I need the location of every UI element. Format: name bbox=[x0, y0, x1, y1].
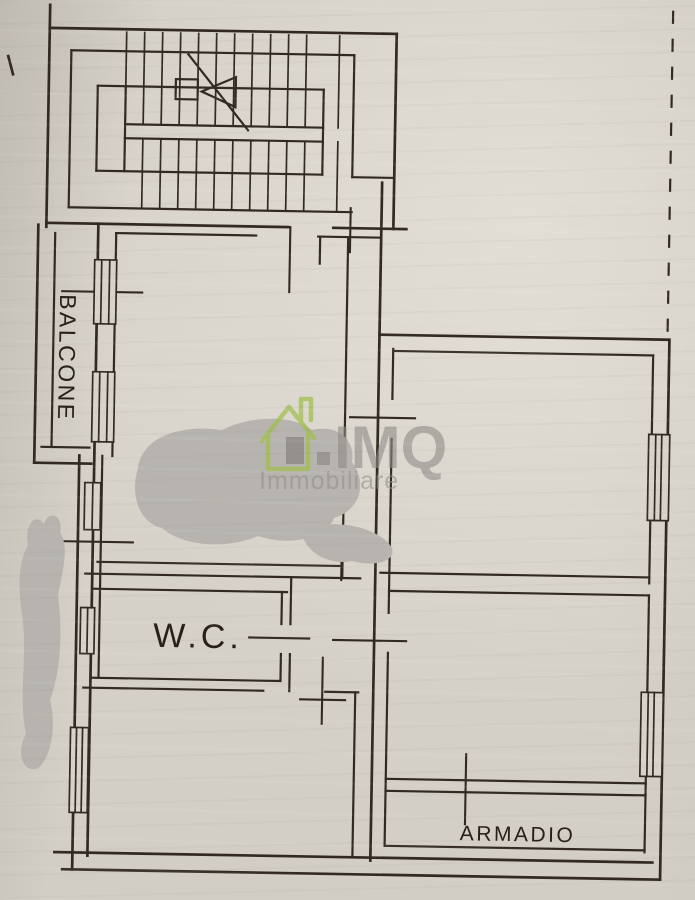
boundary-dashed-line bbox=[667, 12, 673, 338]
watermark: IMQ Immobiliare bbox=[259, 399, 447, 495]
entry-walls bbox=[115, 204, 381, 294]
logo-dot bbox=[317, 452, 330, 465]
label-balcone: BALCONE bbox=[53, 294, 81, 422]
stair-treads bbox=[124, 32, 340, 212]
label-wc: W.C. bbox=[153, 617, 243, 657]
stair-direction-arrow-icon bbox=[175, 54, 249, 130]
floorplan-canvas: BALCONE W.C. ARMADIO IMQ Immobiliare bbox=[0, 0, 695, 900]
door-symbols bbox=[298, 657, 468, 824]
corridor-walls bbox=[329, 182, 419, 861]
watermark-subtitle: Immobiliare bbox=[259, 467, 399, 495]
bottom-left-room-walls bbox=[54, 687, 663, 880]
stray-mark bbox=[8, 56, 13, 74]
floorplan-photo: BALCONE W.C. ARMADIO IMQ Immobiliare bbox=[0, 0, 695, 900]
redaction-blob-left bbox=[20, 516, 65, 770]
label-armadio: ARMADIO bbox=[460, 822, 576, 847]
stairwell bbox=[46, 5, 410, 233]
house-door-mark bbox=[286, 437, 304, 464]
redaction-blob-tail bbox=[300, 524, 393, 564]
